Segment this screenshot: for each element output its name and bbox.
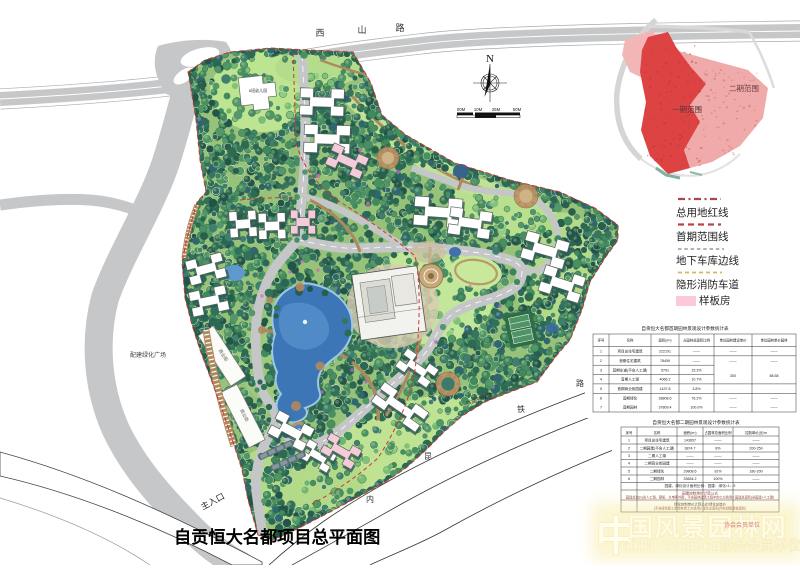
- svg-text:50M: 50M: [513, 107, 522, 112]
- svg-text:路: 路: [576, 378, 584, 388]
- svg-text:内: 内: [366, 494, 374, 504]
- svg-text:N: N: [486, 53, 494, 65]
- svg-text:昆: 昆: [424, 452, 432, 461]
- svg-text:25M: 25M: [492, 107, 501, 112]
- svg-text:铁: 铁: [517, 404, 525, 414]
- svg-text:10M: 10M: [474, 107, 483, 112]
- svg-text:00M: 00M: [457, 107, 466, 112]
- svg-text:山: 山: [357, 25, 366, 35]
- svg-text:西: 西: [315, 28, 324, 38]
- svg-text:6班幼儿园: 6班幼儿园: [249, 87, 267, 93]
- svg-text:路: 路: [395, 22, 404, 33]
- svg-text:配建绿化广场: 配建绿化广场: [130, 351, 166, 359]
